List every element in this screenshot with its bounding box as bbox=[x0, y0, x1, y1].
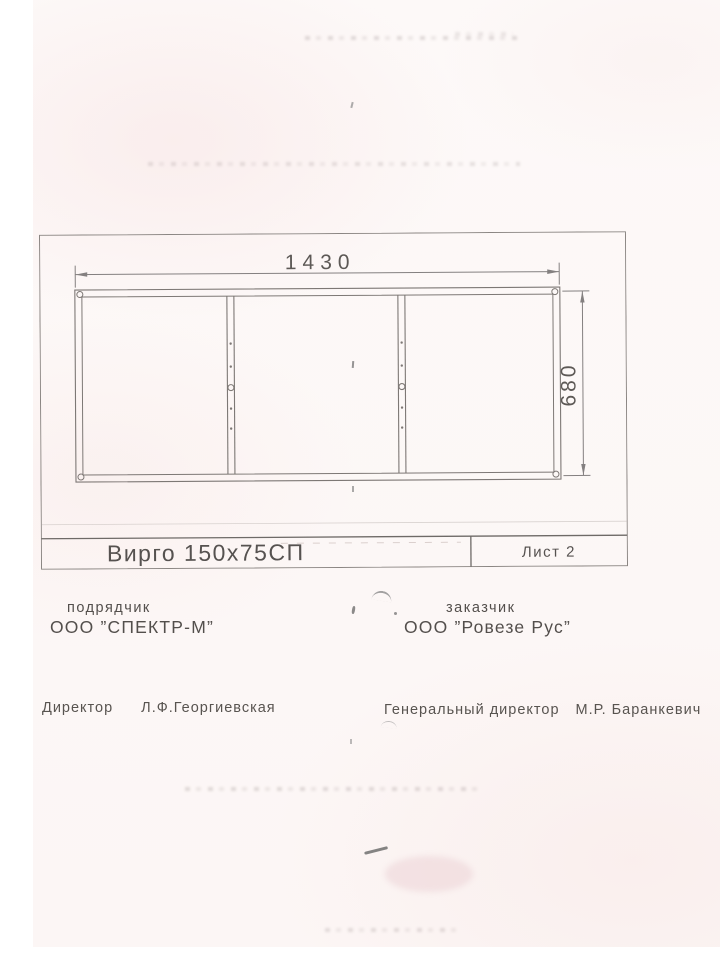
dim-width-label: 1430 bbox=[285, 251, 356, 274]
contractor-label: подрядчик bbox=[50, 600, 250, 616]
bleedthrough-smudge-mid bbox=[148, 162, 520, 166]
corner-holes bbox=[77, 289, 559, 480]
director-signature-line: Директор Л.Ф.Георгиевская bbox=[42, 700, 276, 716]
gen-director-name: М.Р. Баранкевич bbox=[576, 702, 702, 718]
contractor-name: ООО ”СПЕКТР-М” bbox=[50, 617, 250, 638]
divider-holes bbox=[228, 341, 406, 429]
sheet-number-label: Лист 2 bbox=[522, 544, 576, 561]
customer-block: заказчик ООО ”Ровезе Рус” bbox=[404, 600, 634, 638]
drawing-frame-area: Вирго 150х75СП Лист 2 bbox=[39, 231, 628, 570]
frame-drawing: Вирго 150х75СП Лист 2 bbox=[39, 231, 628, 570]
customer-label: заказчик bbox=[404, 600, 634, 616]
bleedthrough-smudge-top2 bbox=[455, 32, 513, 36]
bleedthrough-smudge-bottom bbox=[325, 928, 460, 932]
contractor-block: подрядчик ООО ”СПЕКТР-М” bbox=[50, 600, 250, 638]
sheet-border bbox=[39, 232, 627, 570]
scan-speck bbox=[350, 739, 352, 744]
scan-speck bbox=[394, 612, 397, 615]
drawing-title: Вирго 150х75СП bbox=[107, 539, 305, 566]
director-name: Л.Ф.Георгиевская bbox=[141, 700, 276, 716]
bleedthrough-blob bbox=[385, 856, 473, 892]
gen-director-title: Генеральный директор bbox=[384, 702, 560, 718]
gen-director-signature-line: Генеральный директор М.Р. Баранкевич bbox=[384, 702, 701, 718]
frame-outline bbox=[75, 287, 561, 482]
bleedthrough-smudge-top bbox=[305, 36, 517, 40]
customer-name: ООО ”Ровезе Рус” bbox=[404, 617, 634, 638]
scanned-page: Вирго 150х75СП Лист 2 bbox=[0, 0, 720, 960]
director-title: Директор bbox=[42, 700, 113, 716]
dim-height-label: 680 bbox=[557, 362, 580, 406]
bleedthrough-smudge-low bbox=[185, 787, 480, 791]
